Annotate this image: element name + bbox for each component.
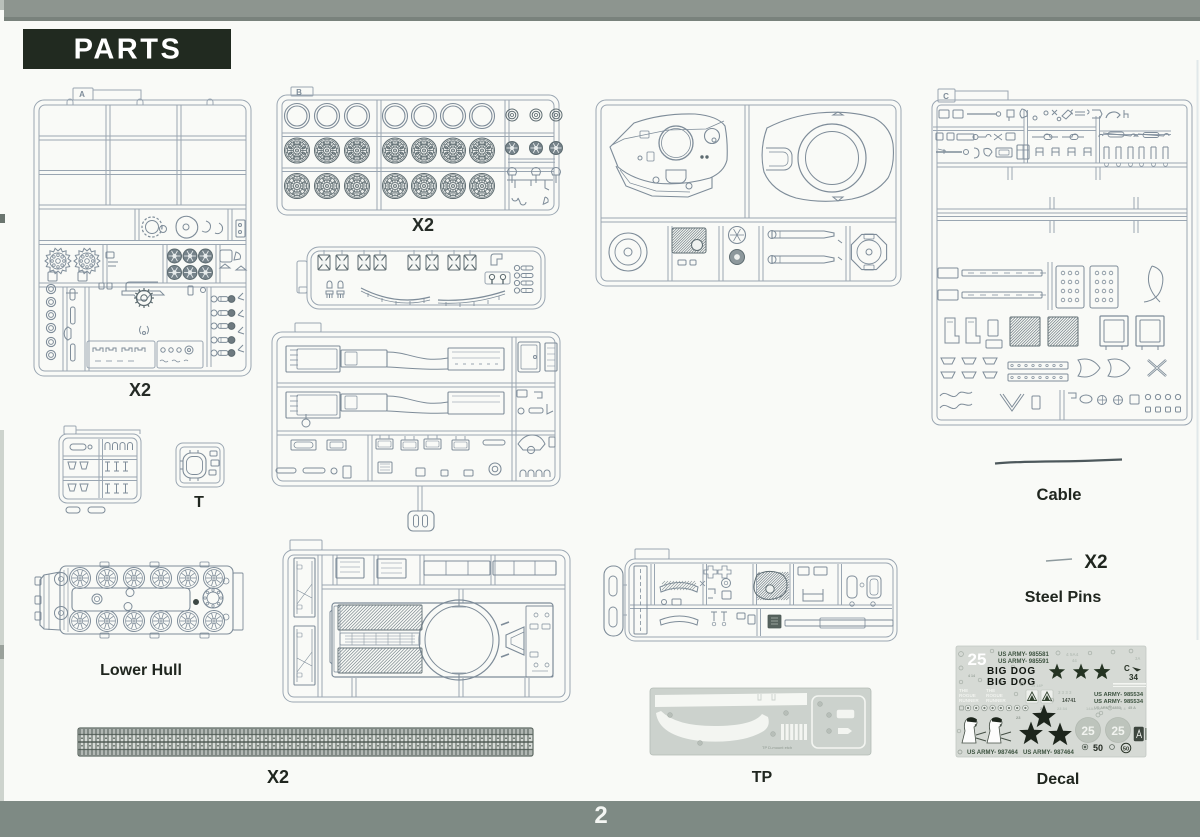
svg-text:25: 25 xyxy=(968,650,987,669)
svg-text:4 14: 4 14 xyxy=(968,674,975,678)
svg-text:23: 23 xyxy=(1016,715,1021,720)
svg-text:Decal: Decal xyxy=(1037,771,1080,788)
svg-text:TP D-mount etch: TP D-mount etch xyxy=(762,745,792,750)
svg-text:X2: X2 xyxy=(1084,552,1107,573)
svg-text:Cable: Cable xyxy=(1037,486,1082,504)
svg-text:45 A: 45 A xyxy=(1128,706,1136,710)
svg-text:14 14P: 14 14P xyxy=(1031,684,1044,688)
svg-text:Lower Hull: Lower Hull xyxy=(100,662,182,679)
svg-text:US ARMY- 987464: US ARMY- 987464 xyxy=(967,750,1018,756)
svg-text:3A: 3A xyxy=(1135,656,1140,661)
svg-text:14741: 14741 xyxy=(1062,698,1076,704)
svg-text:B: B xyxy=(296,88,302,97)
svg-text:50: 50 xyxy=(1123,747,1129,753)
svg-text:US ARMY- 985534: US ARMY- 985534 xyxy=(1094,692,1144,698)
svg-text:BIG DOG: BIG DOG xyxy=(987,677,1036,688)
svg-text:X2: X2 xyxy=(412,215,434,235)
svg-text:X2: X2 xyxy=(129,380,151,400)
svg-text:US ARMY- 987464: US ARMY- 987464 xyxy=(1023,750,1074,756)
svg-text:BIG DOG: BIG DOG xyxy=(987,666,1036,677)
svg-text:X2: X2 xyxy=(267,767,289,787)
svg-text:25: 25 xyxy=(1111,724,1125,738)
svg-text:25: 25 xyxy=(1081,724,1095,738)
svg-text:C: C xyxy=(1124,664,1130,673)
svg-text:3 3 3 3: 3 3 3 3 xyxy=(1058,690,1072,695)
svg-text:44: 44 xyxy=(1072,658,1077,663)
svg-text:3 4: 3 4 xyxy=(1120,706,1126,711)
svg-text:Steel Pins: Steel Pins xyxy=(1025,589,1102,606)
svg-text:US ARMY- 985581: US ARMY- 985581 xyxy=(998,652,1049,658)
svg-text:50: 50 xyxy=(1093,743,1103,753)
svg-text:T: T xyxy=(194,494,204,511)
svg-text:2: 2 xyxy=(594,802,607,829)
svg-text:14A4 11: 14A4 11 xyxy=(1086,706,1102,711)
svg-text:RUNNER: RUNNER xyxy=(959,698,979,703)
svg-text:PARTS: PARTS xyxy=(74,34,183,66)
svg-text:23 34: 23 34 xyxy=(1057,706,1068,711)
svg-text:US ARMY- 985534: US ARMY- 985534 xyxy=(1094,699,1144,705)
svg-text:34: 34 xyxy=(1129,673,1138,682)
svg-text:C: C xyxy=(943,92,949,101)
svg-text:US ARMY- 985591: US ARMY- 985591 xyxy=(998,659,1049,665)
svg-text:RUNNER: RUNNER xyxy=(986,698,1006,703)
svg-text:A: A xyxy=(79,90,85,99)
svg-text:TP: TP xyxy=(752,769,773,786)
svg-text:4 5A4: 4 5A4 xyxy=(1066,652,1079,657)
